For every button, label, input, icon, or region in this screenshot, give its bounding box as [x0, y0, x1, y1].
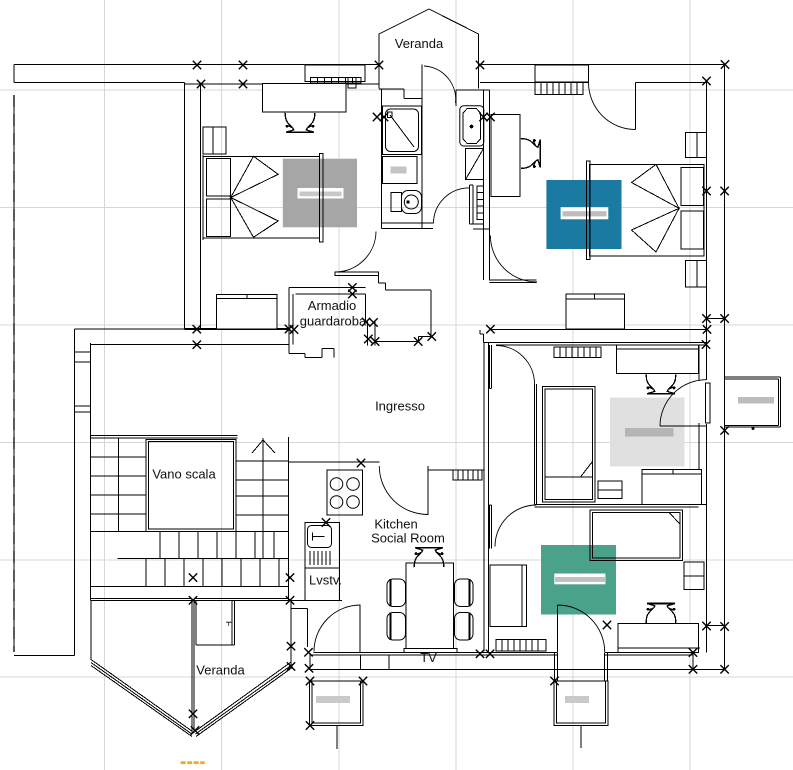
svg-text:Veranda: Veranda	[196, 663, 245, 678]
svg-text:Lvstv.: Lvstv.	[309, 573, 342, 588]
svg-text:Vano scala: Vano scala	[152, 467, 216, 482]
svg-text:F: F	[224, 621, 234, 627]
svg-text:Kitchen: Kitchen	[374, 517, 417, 532]
svg-text:Veranda: Veranda	[395, 36, 444, 51]
svg-text:Social Room: Social Room	[371, 531, 445, 546]
svg-text:Armadio: Armadio	[308, 298, 356, 313]
svg-text:Ingresso: Ingresso	[375, 399, 425, 414]
svg-text:guardaroba: guardaroba	[300, 314, 367, 329]
svg-text:TV: TV	[420, 650, 437, 665]
